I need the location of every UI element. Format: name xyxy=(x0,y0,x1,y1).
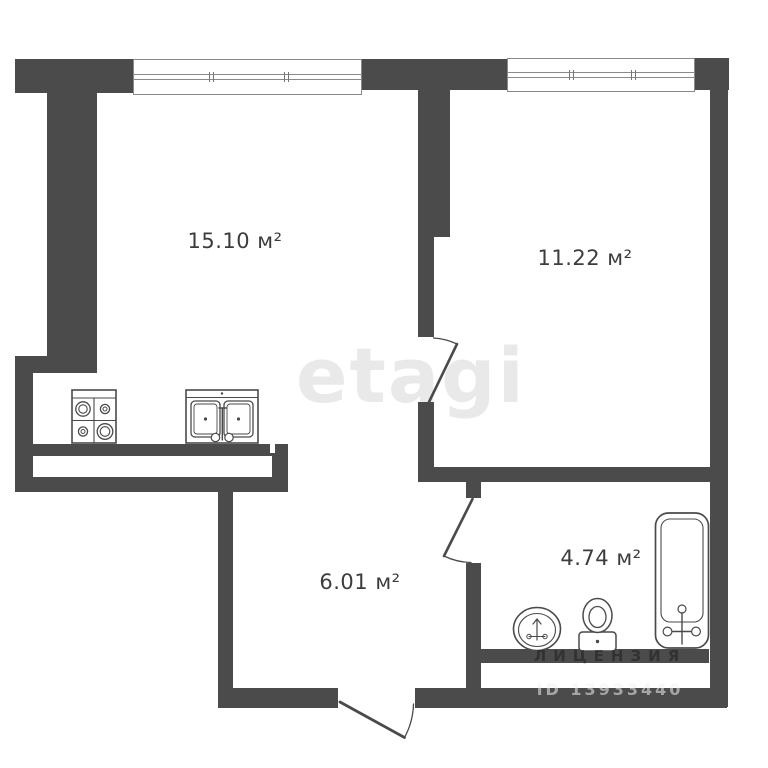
room-area-label-bedroom: 11.22 м² xyxy=(510,246,660,270)
kitchen-counter-niche xyxy=(33,456,272,477)
wall-top-middle xyxy=(362,59,507,90)
floor-plan: etagi xyxy=(0,0,768,768)
wall-right-exterior xyxy=(710,58,728,707)
window-bedroom xyxy=(507,58,695,92)
wall-rooms-divider-upper-narrow xyxy=(418,237,434,337)
license-watermark: ЛИЦЕНЗИЯ xyxy=(505,647,715,665)
window-mullion xyxy=(569,70,574,80)
bathtub-icon xyxy=(656,513,709,648)
room-area-label-bathroom: 4.74 м² xyxy=(526,546,676,570)
wall-kitchen-counter xyxy=(15,444,288,492)
room-area-label-living-room: 15.10 м² xyxy=(160,229,310,253)
washbasin-icon xyxy=(514,608,561,651)
window-mullion xyxy=(284,72,289,82)
brand-watermark: etagi xyxy=(296,338,526,414)
wall-rooms-divider-upper-wide xyxy=(418,90,450,237)
kitchen-sink-icon xyxy=(186,390,258,443)
window-mullion xyxy=(209,72,214,82)
window-glazing-line xyxy=(133,74,362,80)
toilet-icon xyxy=(579,599,616,652)
wall-top-left-block xyxy=(15,59,133,93)
wall-hallway-left xyxy=(218,490,233,708)
wall-left-upper xyxy=(47,93,97,364)
stove-icon xyxy=(72,390,116,443)
door-bathroom xyxy=(444,499,473,563)
wall-bottom-left xyxy=(218,688,338,708)
window-mullion xyxy=(631,70,636,80)
window-living-room xyxy=(133,59,362,95)
room-area-label-hallway: 6.01 м² xyxy=(285,570,435,594)
wall-bathroom-separator xyxy=(466,563,481,689)
wall-bathroom-door-stub xyxy=(466,482,481,498)
window-glazing-line xyxy=(507,72,695,78)
wall-bathroom-top xyxy=(418,467,710,482)
listing-id-watermark: ID 13933440 xyxy=(505,680,715,699)
kitchen-opening-jamb xyxy=(270,444,275,453)
door-entrance xyxy=(340,702,414,738)
